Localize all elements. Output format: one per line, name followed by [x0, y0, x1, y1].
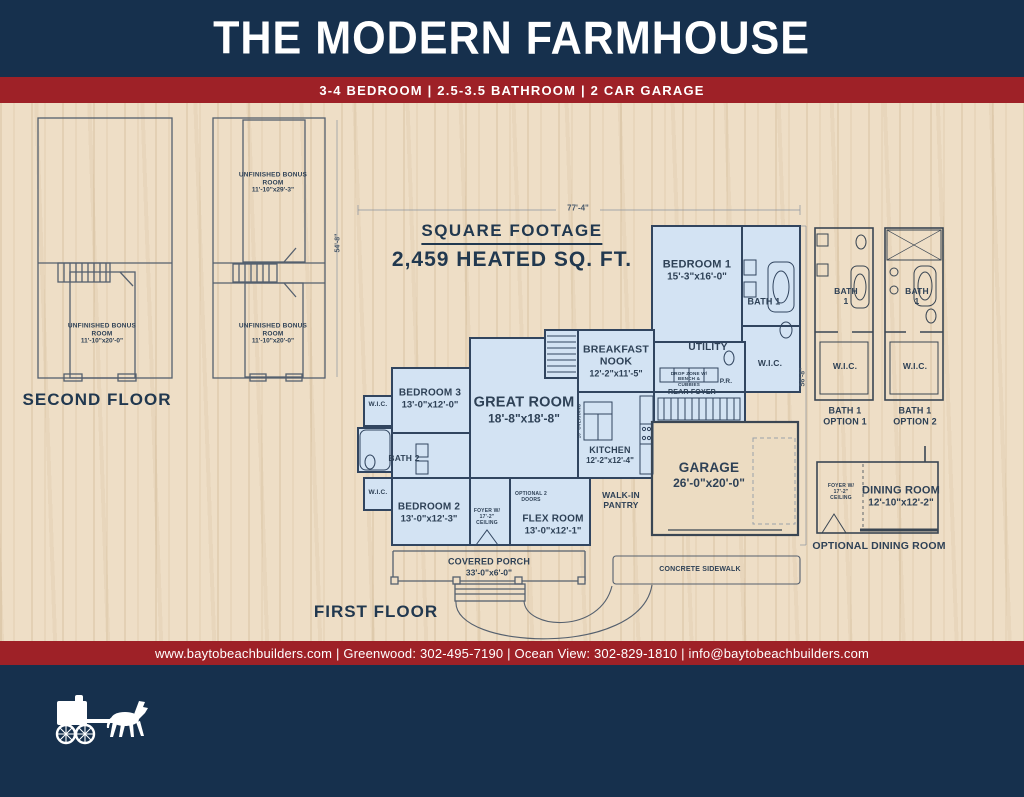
option2-caption: BATH 1 OPTION 2 — [892, 405, 938, 426]
great-room-label: GREAT ROOM 18'-8"x18'-8" — [474, 394, 575, 425]
plan-a-bonus-room-label: UNFINISHED BONUS ROOM 11'-10"x20'-0" — [66, 323, 138, 346]
concrete-sidewalk-label: CONCRETE SIDEWALK — [659, 566, 741, 574]
bedroom2-label: BEDROOM 2 13'-0"x12'-3" — [398, 502, 460, 525]
square-footage-value: 2,459 HEATED SQ. FT. — [392, 248, 632, 272]
plan-b-bonus-lower-label: UNFINISHED BONUS ROOM 11'-10"x20'-0" — [237, 323, 309, 346]
horse-carriage-logo-icon — [55, 693, 155, 749]
plan-area: SQUARE FOOTAGE 2,459 HEATED SQ. FT. SECO… — [0, 103, 1024, 641]
walk-in-pantry-label: WALK-IN PANTRY — [595, 490, 647, 510]
flyer-page: THE MODERN FARMHOUSE 3-4 BEDROOM | 2.5-3… — [0, 0, 1024, 797]
dimension-77-4: 77'-4" — [567, 204, 589, 213]
plan-b-bonus-upper-label: UNFINISHED BONUS ROOM 11'-10"x29'-3" — [237, 172, 309, 195]
drop-zone-label: DROP ZONE W/ BENCH & CUBBIES — [668, 371, 710, 387]
contact-info: www.baytobeachbuilders.com | Greenwood: … — [155, 646, 869, 661]
option1-bath-label: BATH 1 — [831, 286, 861, 306]
optional-doors-label: OPTIONAL 2 DOORS — [514, 492, 548, 504]
dimension-54-8: 54'-8" — [335, 234, 342, 253]
breakfast-nook-label: BREAKFAST NOOK 12'-2"x11'-5" — [583, 343, 649, 378]
wic-bath1-label: W.I.C. — [758, 358, 782, 368]
dining-room-label: DINING ROOM 12'-10"x12'-2" — [862, 485, 940, 510]
first-floor-caption: FIRST FLOOR — [314, 602, 438, 622]
foyer-label: FOYER W/ 17'-2" CEILING — [470, 509, 504, 527]
second-floor-caption: SECOND FLOOR — [23, 390, 172, 410]
contact-bar: www.baytobeachbuilders.com | Greenwood: … — [0, 641, 1024, 665]
option2-wic-label: W.I.C. — [903, 361, 927, 371]
option1-wic-label: W.I.C. — [833, 361, 857, 371]
wic-left-bottom-label: W.I.C. — [369, 489, 388, 497]
bedroom1-label: BEDROOM 1 15'-3"x16'-0" — [663, 259, 731, 284]
powder-room-label: P.R. — [720, 378, 733, 386]
utility-label: UTILITY — [688, 342, 727, 354]
option2-bath-label: BATH 1 — [902, 286, 932, 306]
garage-label: GARAGE 26'-0"x20'-0" — [673, 460, 745, 490]
wic-left-top-label: W.I.C. — [369, 401, 388, 409]
dining-foyer-label: FOYER W/ 17'-2" CEILING — [824, 484, 858, 502]
dimension-56-8: 56'-8" — [800, 368, 807, 387]
bath2-label: BATH 2 — [388, 453, 420, 463]
square-footage-label: SQUARE FOOTAGE — [421, 221, 602, 245]
rear-foyer-label: REAR FOYER — [668, 389, 716, 397]
overhang-note: 10" OVERHANG — [578, 404, 583, 438]
kitchen-label: KITCHEN 12'-2"x12'-4" — [586, 445, 634, 465]
bath1-label: BATH 1 — [747, 297, 781, 308]
covered-porch-label: COVERED PORCH 33'-0"x6'-0" — [448, 557, 530, 578]
footer: BAY to BEACH B U I L D E R S I N C. Some… — [0, 665, 1024, 797]
bedroom3-label: BEDROOM 3 13'-0"x12'-0" — [399, 388, 461, 411]
flex-room-label: FLEX ROOM 13'-0"x12'-1" — [522, 514, 583, 537]
option1-caption: BATH 1 OPTION 1 — [822, 405, 868, 426]
optional-dining-caption: OPTIONAL DINING ROOM — [812, 540, 945, 552]
